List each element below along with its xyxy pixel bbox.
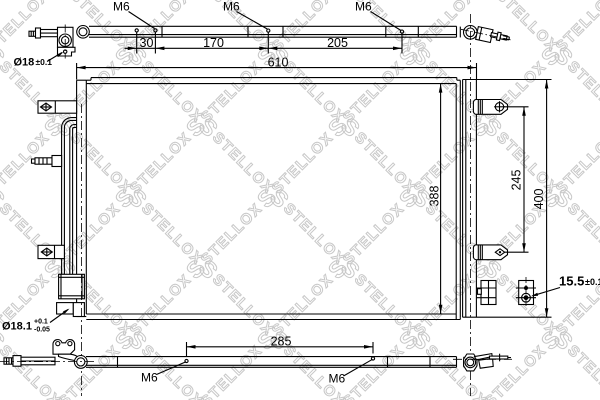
svg-text:Ø18: Ø18	[14, 57, 35, 69]
svg-text:-0.05: -0.05	[34, 327, 50, 334]
svg-text:388: 388	[428, 186, 442, 207]
svg-text:M6: M6	[141, 371, 158, 385]
svg-text:285: 285	[271, 334, 292, 348]
svg-text:+0.1: +0.1	[34, 319, 48, 326]
svg-text:245: 245	[510, 170, 524, 191]
svg-text:M6: M6	[329, 372, 346, 386]
svg-text:Ø18.1: Ø18.1	[2, 321, 32, 333]
svg-text:610: 610	[268, 55, 289, 69]
svg-text:400: 400	[532, 189, 546, 210]
svg-text:±0.1: ±0.1	[36, 57, 53, 67]
svg-text:30: 30	[140, 36, 154, 50]
svg-text:15.5: 15.5	[559, 274, 584, 289]
svg-text:170: 170	[203, 36, 224, 50]
svg-text:M6: M6	[355, 0, 372, 14]
svg-text:M6: M6	[113, 0, 130, 14]
svg-text:±0.1: ±0.1	[585, 277, 600, 287]
svg-text:205: 205	[327, 36, 348, 50]
